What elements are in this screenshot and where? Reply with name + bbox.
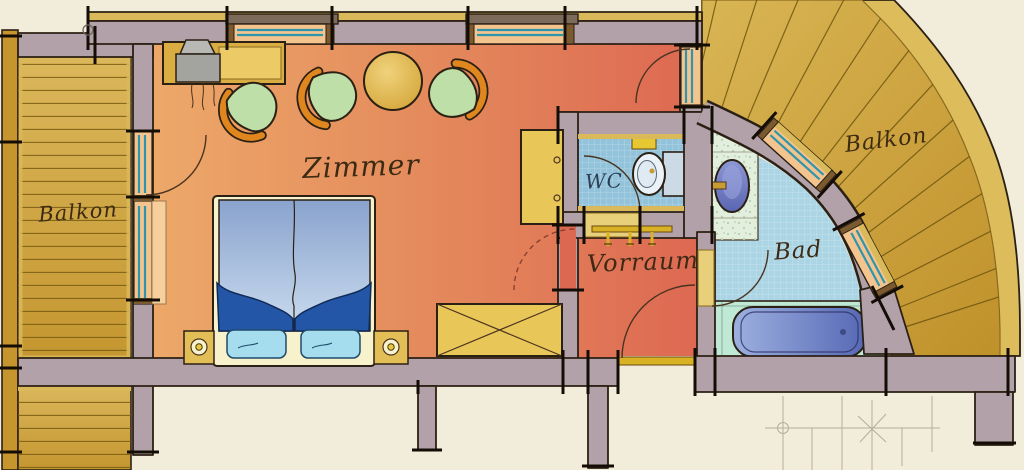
nightstand-right [374,331,408,364]
balcony-rail-left [2,30,18,470]
window-sill [152,201,166,304]
insulation-strip-top [88,12,702,21]
nightstand-left [184,331,214,364]
entry-threshold [618,357,695,365]
bathtub-area [713,301,886,362]
coffee-table [364,52,422,110]
window-top-2 [466,14,578,44]
balcony-door-left [134,131,152,197]
cistern [632,138,656,149]
wall-step-right [975,392,1013,445]
zimmer-label: Zimmer [301,148,421,185]
toilet [633,152,685,196]
balcony-deck-lower [18,386,131,470]
floor-plan: Zimmer Vorraum Bad WC Balkon Balkon [0,0,1024,470]
vorraum-label: Vorraum [587,246,700,278]
wall-bottom-right [695,356,1015,392]
floor-plan-svg: Zimmer Vorraum Bad WC Balkon Balkon [0,0,1024,470]
passage-opening [560,225,576,290]
wc-label: WC [585,168,624,193]
bench [437,304,562,356]
bad-door-threshold [698,250,714,306]
bad-label: Bad [772,236,823,265]
left-balcony [2,30,131,470]
wall-top [88,21,702,44]
wall-stub-1 [418,386,436,450]
window-top-1 [226,14,338,44]
wall-wc-right [684,112,712,238]
insulation-wc-top [578,134,684,139]
wall-stub-2 [588,386,608,468]
drain-icon [840,329,846,335]
balcony-door-right [681,47,701,105]
wc-door-threshold [584,213,640,237]
bed [213,196,375,366]
window-left [134,195,166,304]
insulation-wc-bottom [578,206,684,211]
bathtub [733,307,866,357]
